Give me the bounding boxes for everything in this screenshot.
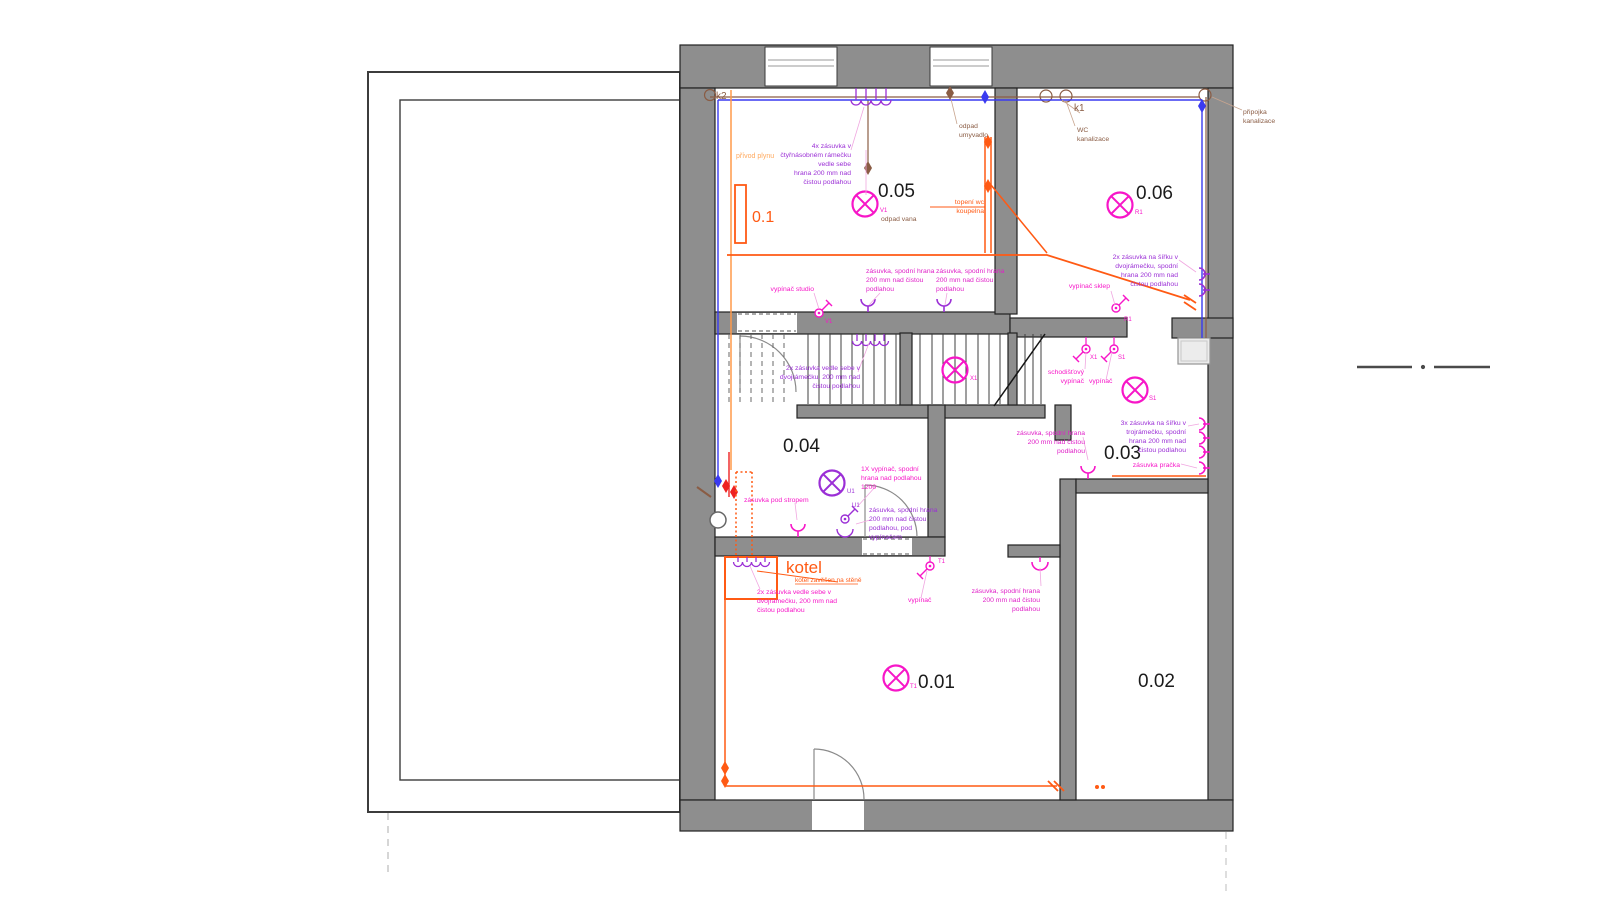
dev-label-lamp-R1: R1 (1135, 210, 1143, 216)
stair-stringer-2 (1008, 333, 1017, 405)
ann-zasuvka-pracka: zásuvka pračka (1133, 462, 1180, 469)
ann-socket-room02: zásuvka, spodní hrana200 mm nad čistoupo… (1017, 430, 1086, 455)
room-label-06: 0.06 (1136, 183, 1173, 204)
socket-under-switch-U1 (837, 529, 853, 537)
switch-S1 (1101, 337, 1118, 362)
socket-room02-wall (1081, 466, 1095, 479)
dev-label-lamp-U1: U1 (847, 489, 855, 495)
fixtures (1178, 338, 1210, 364)
circuit-dot-b (1101, 785, 1105, 789)
privod-plynu-label: přívod plynu (736, 153, 774, 160)
socket-corridor-2 (937, 299, 951, 312)
dev-label-lamp-X1: X1 (970, 376, 978, 382)
k1-label: k1 (1074, 103, 1085, 114)
ceiling-light-R1 (1108, 193, 1133, 218)
socket-room04-ceiling (791, 524, 805, 537)
wall-corridor-right (1010, 318, 1127, 337)
kotel-label: kotel (786, 558, 822, 577)
circuit-dot-a (1095, 785, 1099, 789)
odpad-vana-label: odpad vana (881, 216, 917, 223)
ann-socket-pod-vypinacem: zásuvka, spodní hrana200 mm nad čistoupo… (869, 507, 938, 541)
wall-left (680, 88, 715, 800)
ann-socket-kotel: 2x zásuvka vedle sebe vdvojrámečku, 200 … (757, 589, 837, 614)
ann-socket-corridor-1: zásuvka, spodní hrana200 mm nad čistoupo… (866, 268, 935, 293)
ann-socket-room01: zásuvka, spodní hrana200 mm nad čistoupo… (972, 588, 1041, 613)
ceiling-light-T1 (884, 666, 909, 691)
water-marker-top (981, 90, 989, 104)
wall-01-stub (1008, 545, 1060, 557)
k2-label: k2 (716, 91, 727, 102)
ann-quad-socket: 4x zásuvka včtyřnásobném rámečkuvedle se… (780, 143, 851, 186)
ann-vypinac-sklep: vypínač sklep (1069, 283, 1110, 290)
room-label-02: 0.02 (1138, 671, 1175, 692)
gas-meter-rect (735, 185, 746, 243)
switch-X1 (1073, 337, 1090, 362)
odpad-umyvadlo-label: odpadumyvadlo (959, 123, 988, 139)
socket-kotel (734, 557, 770, 567)
ann-vypinac-studio: vypínač studio (771, 286, 815, 293)
circuit-marker-a (721, 761, 729, 775)
wall-05-06 (995, 88, 1017, 314)
ann-socket-double-stairs: 2x zásuvka vedle sebe vdvojrámečku, 200 … (780, 365, 861, 390)
kotel-note-label: kotel zavěšen na stěně (795, 577, 862, 584)
stair-stringer-1 (900, 333, 912, 405)
sink-unit-box (1178, 338, 1210, 364)
room-label-04: 0.04 (783, 436, 820, 457)
ann-vypinac-t1: vypínač (908, 597, 932, 604)
topeni-label: topení wckoupelna (955, 199, 985, 215)
wall-01-02 (1060, 479, 1076, 800)
ann-vypinac-s1: vypínač (1089, 378, 1113, 385)
door-main-entrance (812, 749, 864, 830)
room-label-05: 0.05 (878, 181, 915, 202)
heating-bath-risers (985, 137, 991, 253)
pripojka-kanalizace-label: připojkakanalizace (1243, 109, 1275, 125)
room-label-gas-riser: 0.1 (752, 209, 774, 226)
stair-direction-line (994, 334, 1045, 406)
window-2 (930, 47, 992, 86)
wall-stairs-landing (797, 405, 1045, 418)
socket-double-stairs (853, 334, 889, 346)
annex-inner-rect (400, 100, 680, 780)
ann-socket-right-double: 2x zásuvka na šířku vdvojrámečku, spodní… (1113, 254, 1179, 288)
stair-treads-dashed (729, 334, 784, 404)
floor-plan-page: 0.05 0.06 0.04 0.03 0.01 0.02 0.1 k2 k1 … (0, 0, 1600, 900)
room-label-03: 0.03 (1104, 443, 1141, 464)
wall-04-right (928, 405, 945, 537)
dev-label-lamp-V1: V1 (880, 208, 888, 214)
dev-label-switch-R1: R1 (1124, 317, 1132, 323)
section-line (1357, 365, 1490, 368)
wc-kanalizace-label: WCkanalizace (1077, 127, 1109, 143)
odpad-vana-marker (864, 161, 872, 175)
annex-outline (368, 72, 680, 812)
ceiling-light-S1 (1123, 378, 1148, 403)
dev-label-lamp-S1: S1 (1149, 396, 1157, 402)
annex-outer-rect (368, 72, 680, 812)
ann-schodistovy-vypinac: schodišťovývypínač (1048, 369, 1085, 385)
ceiling-light-V1 (853, 192, 878, 217)
heating-terminal-hash (1184, 295, 1196, 310)
wall-bottom (680, 800, 1233, 831)
circuit-bottom-run (725, 599, 1057, 786)
floor-plan-svg: 0.05 0.06 0.04 0.03 0.01 0.02 0.1 k2 k1 … (0, 0, 1600, 900)
room-label-01: 0.01 (918, 672, 955, 693)
dev-label-switch-X1: X1 (1090, 355, 1098, 361)
chimney-vent-circle (710, 512, 726, 528)
switch-T1 (917, 556, 934, 579)
dev-label-switch-U1: U1 (852, 503, 860, 509)
dev-label-switch-T1: T1 (938, 559, 946, 565)
ann-socket-corridor-2: zásuvka, spodní hrana200 mm nad čistoupo… (936, 268, 1005, 293)
ann-socket-strop: zásuvka pod stropem (744, 497, 809, 504)
window-1 (765, 47, 837, 86)
dev-label-switch-V1: V1 (825, 319, 833, 325)
ceiling-light-U1 (820, 471, 845, 496)
dev-label-switch-S1: S1 (1118, 355, 1126, 361)
dev-label-lamp-T1: T1 (910, 684, 918, 690)
wall-right (1208, 88, 1233, 800)
ann-vypinac-1x: 1X vypínač, spodníhrana nad podlahou1200 (861, 466, 922, 491)
wall-02-top (1076, 479, 1208, 493)
heating-marker-b (730, 485, 738, 499)
